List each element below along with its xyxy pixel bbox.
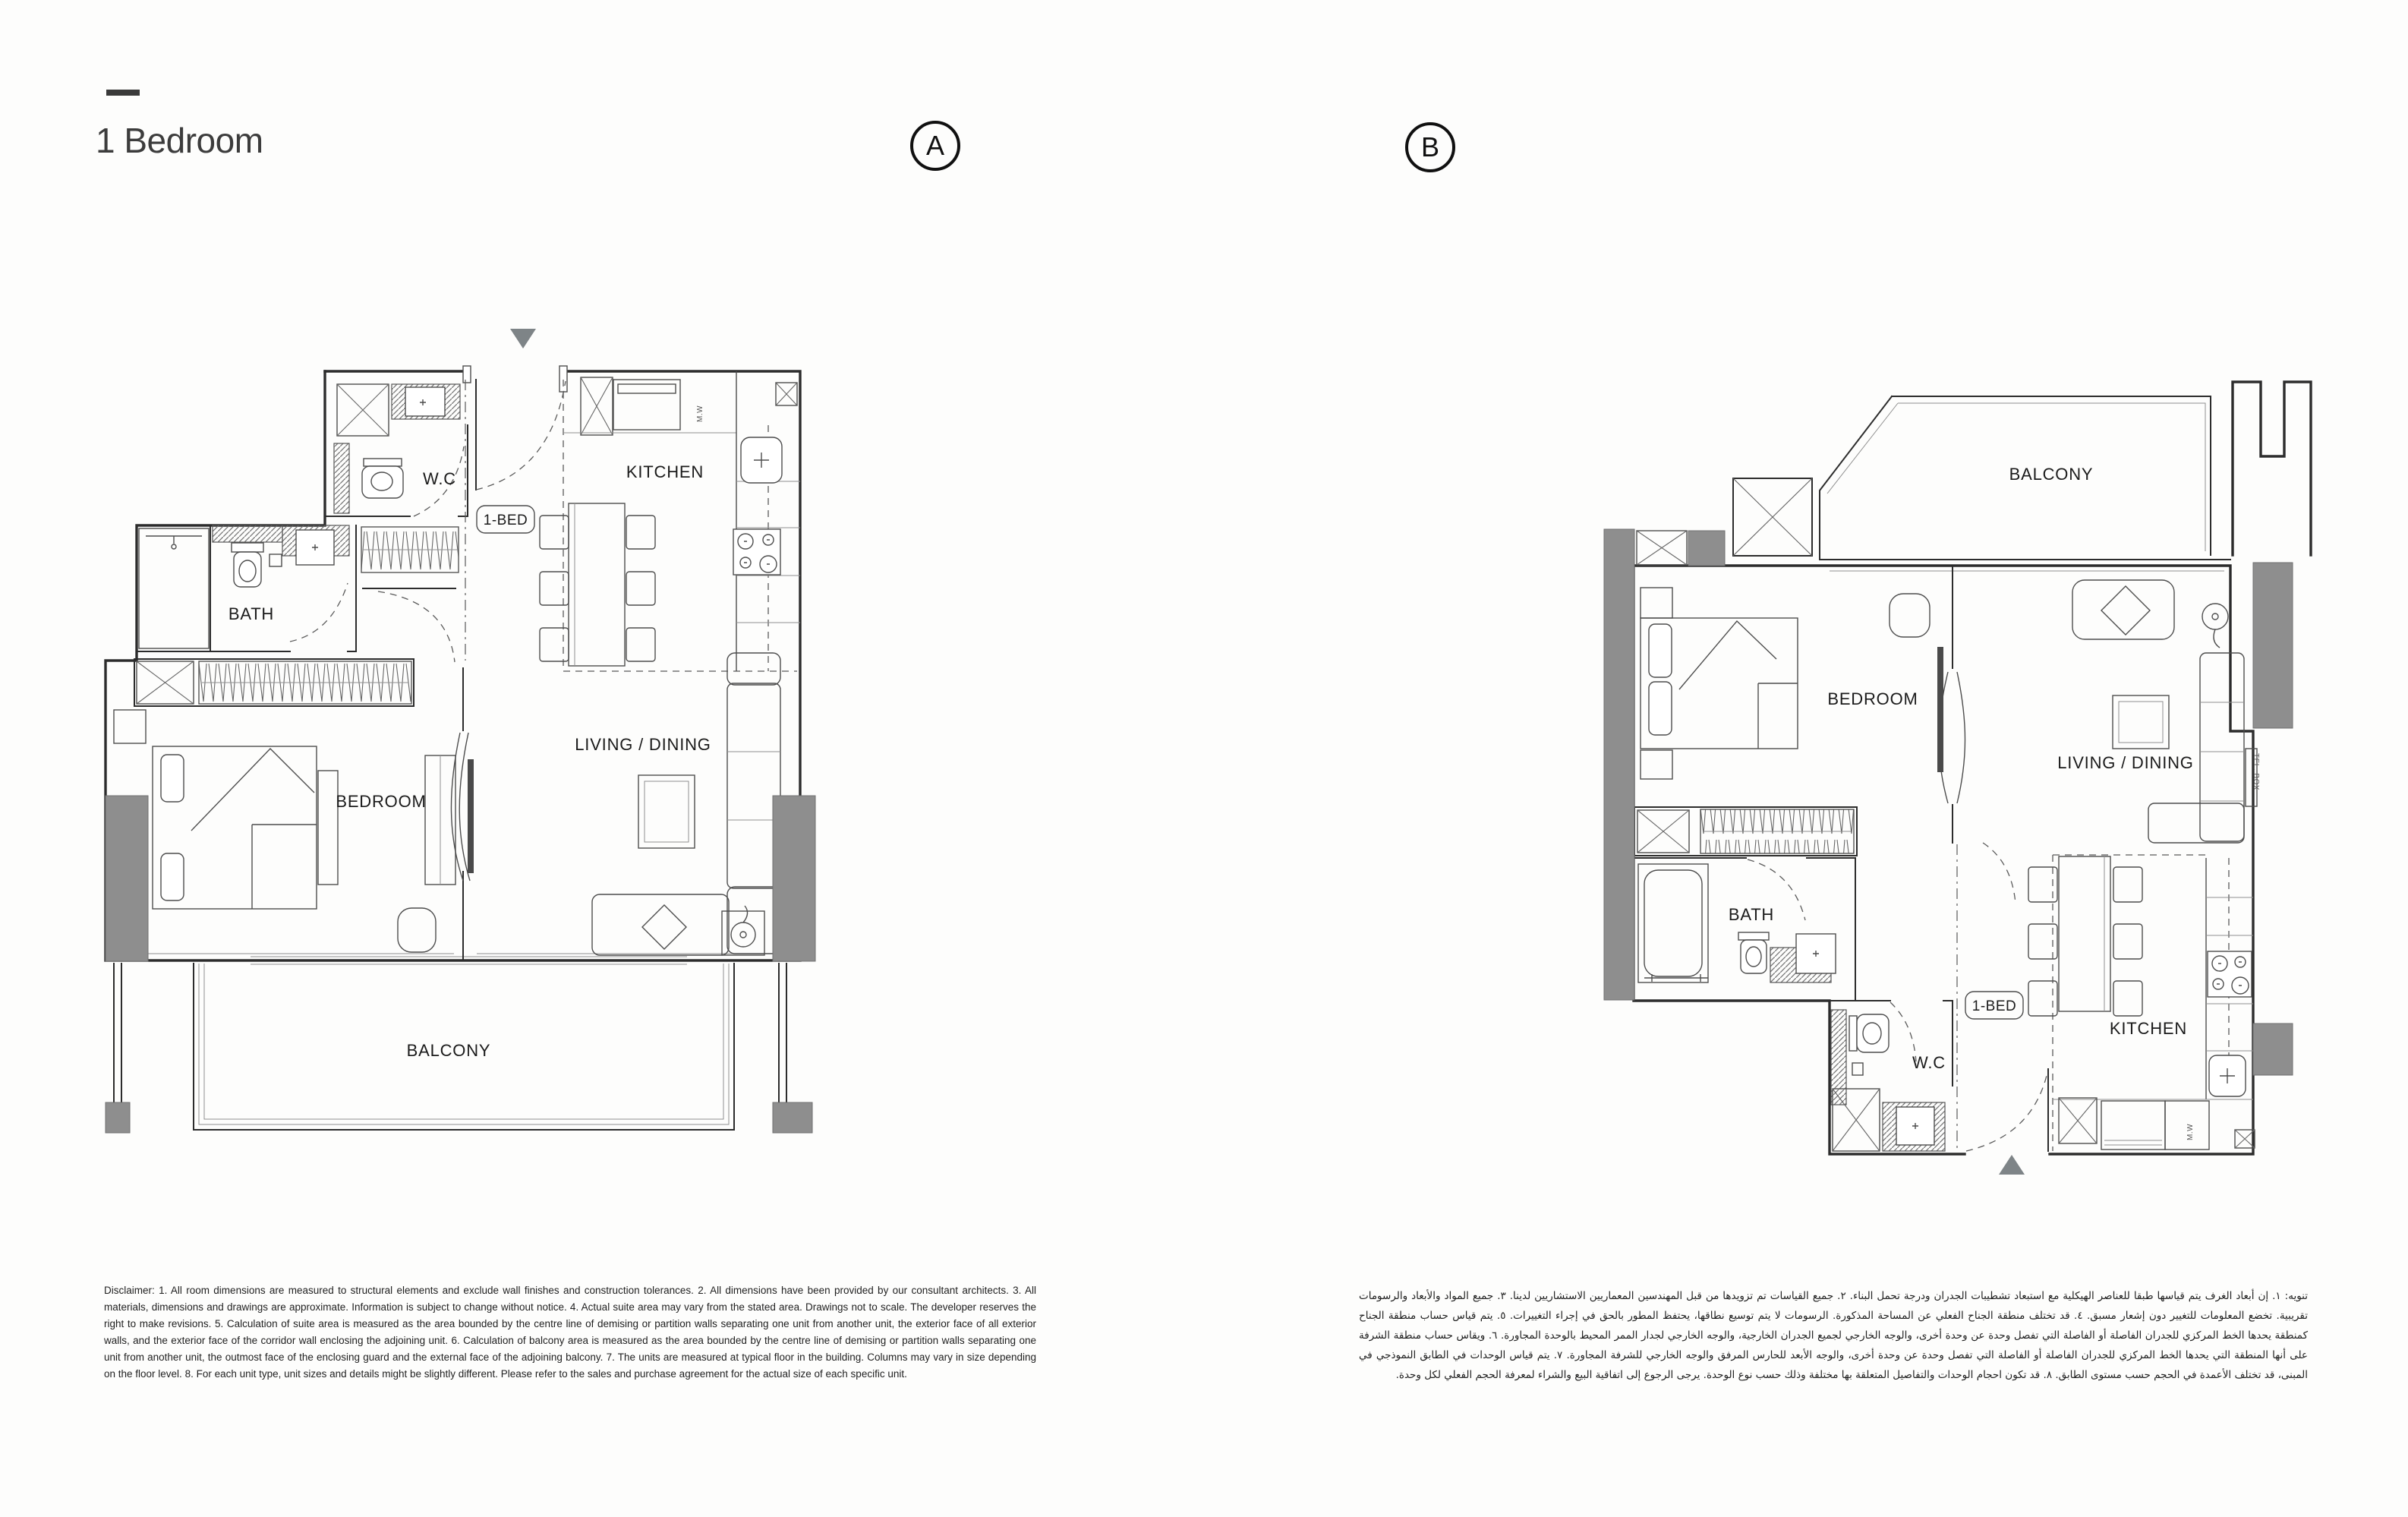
plan-a-column-right <box>773 796 815 961</box>
floor-plan-a: W.C KITCHEN M.W 1-BED BATH BEDROOM LIVIN… <box>106 329 815 1133</box>
plan-a-label-microwave: M.W <box>696 405 704 422</box>
plan-a-unit-badge: 1-BED <box>477 506 534 533</box>
plan-b-label-living: LIVING / DINING <box>2057 753 2193 772</box>
plan-b-tv <box>1937 647 1943 772</box>
plan-a-bath-fixtures <box>139 525 349 651</box>
plan-a-tv <box>468 759 474 873</box>
plan-b-living-furniture <box>2072 580 2244 843</box>
plan-a-label-wc: W.C <box>423 469 456 488</box>
plan-a-unit-badge-text: 1-BED <box>484 512 528 528</box>
plan-b-column-right-bottom <box>2253 1023 2293 1075</box>
plan-b-label-wc: W.C <box>1912 1053 1946 1072</box>
plan-a-entry-arrow-icon <box>510 329 536 348</box>
plan-b-entry-arrow-icon <box>1999 1155 2025 1175</box>
plan-b-shafts <box>1637 478 1812 566</box>
plan-b-column-left <box>1604 529 1634 1000</box>
plan-a-column-left <box>106 796 148 961</box>
plan-b-tel-box-label: TEL. BOX <box>2252 753 2260 790</box>
plan-b-label-kitchen: KITCHEN <box>2110 1019 2187 1038</box>
plan-b-walls <box>1634 382 2311 1154</box>
plan-b-label-balcony: BALCONY <box>2009 465 2094 484</box>
plan-b-wardrobes <box>1634 807 1857 856</box>
plan-b-unit-badge-text: 1-BED <box>1972 998 2016 1014</box>
plan-b-kitchen-fixtures <box>2028 856 2255 1150</box>
floorplan-sheet: 1 Bedroom A B <box>0 0 2408 1517</box>
floor-plan-b: TEL. BOX BALCONY BEDROOM LIVING / DINING… <box>1604 382 2311 1175</box>
plan-a-kitchen-fixtures <box>540 371 800 671</box>
disclaimer-english: Disclaimer: 1. All room dimensions are m… <box>104 1282 1036 1383</box>
plan-a-label-balcony: BALCONY <box>407 1041 491 1060</box>
plan-b-wc-fixtures <box>1831 1010 1945 1151</box>
plan-a-label-bath: BATH <box>229 604 274 623</box>
plan-a-label-bedroom: BEDROOM <box>336 792 426 811</box>
plan-b-label-bedroom: BEDROOM <box>1827 689 1918 708</box>
disclaimer-arabic: تنويه: ١. إن أبعاد الغرف يتم قياسها طبقا… <box>1359 1286 2308 1385</box>
plan-a-label-living: LIVING / DINING <box>575 735 711 754</box>
plan-b-bedroom-furniture <box>1641 588 1943 779</box>
plan-a-label-kitchen: KITCHEN <box>626 462 704 481</box>
plan-b-label-bath: BATH <box>1729 905 1774 924</box>
plan-b-label-microwave: M.W <box>2186 1124 2195 1140</box>
plan-a-living-furniture <box>468 653 780 955</box>
plan-b-unit-badge: 1-BED <box>1965 992 2023 1019</box>
plan-a-bedroom-furniture <box>114 710 455 952</box>
plan-b-column-right-top <box>2253 563 2293 728</box>
plan-a-wc-fixtures <box>334 384 460 513</box>
